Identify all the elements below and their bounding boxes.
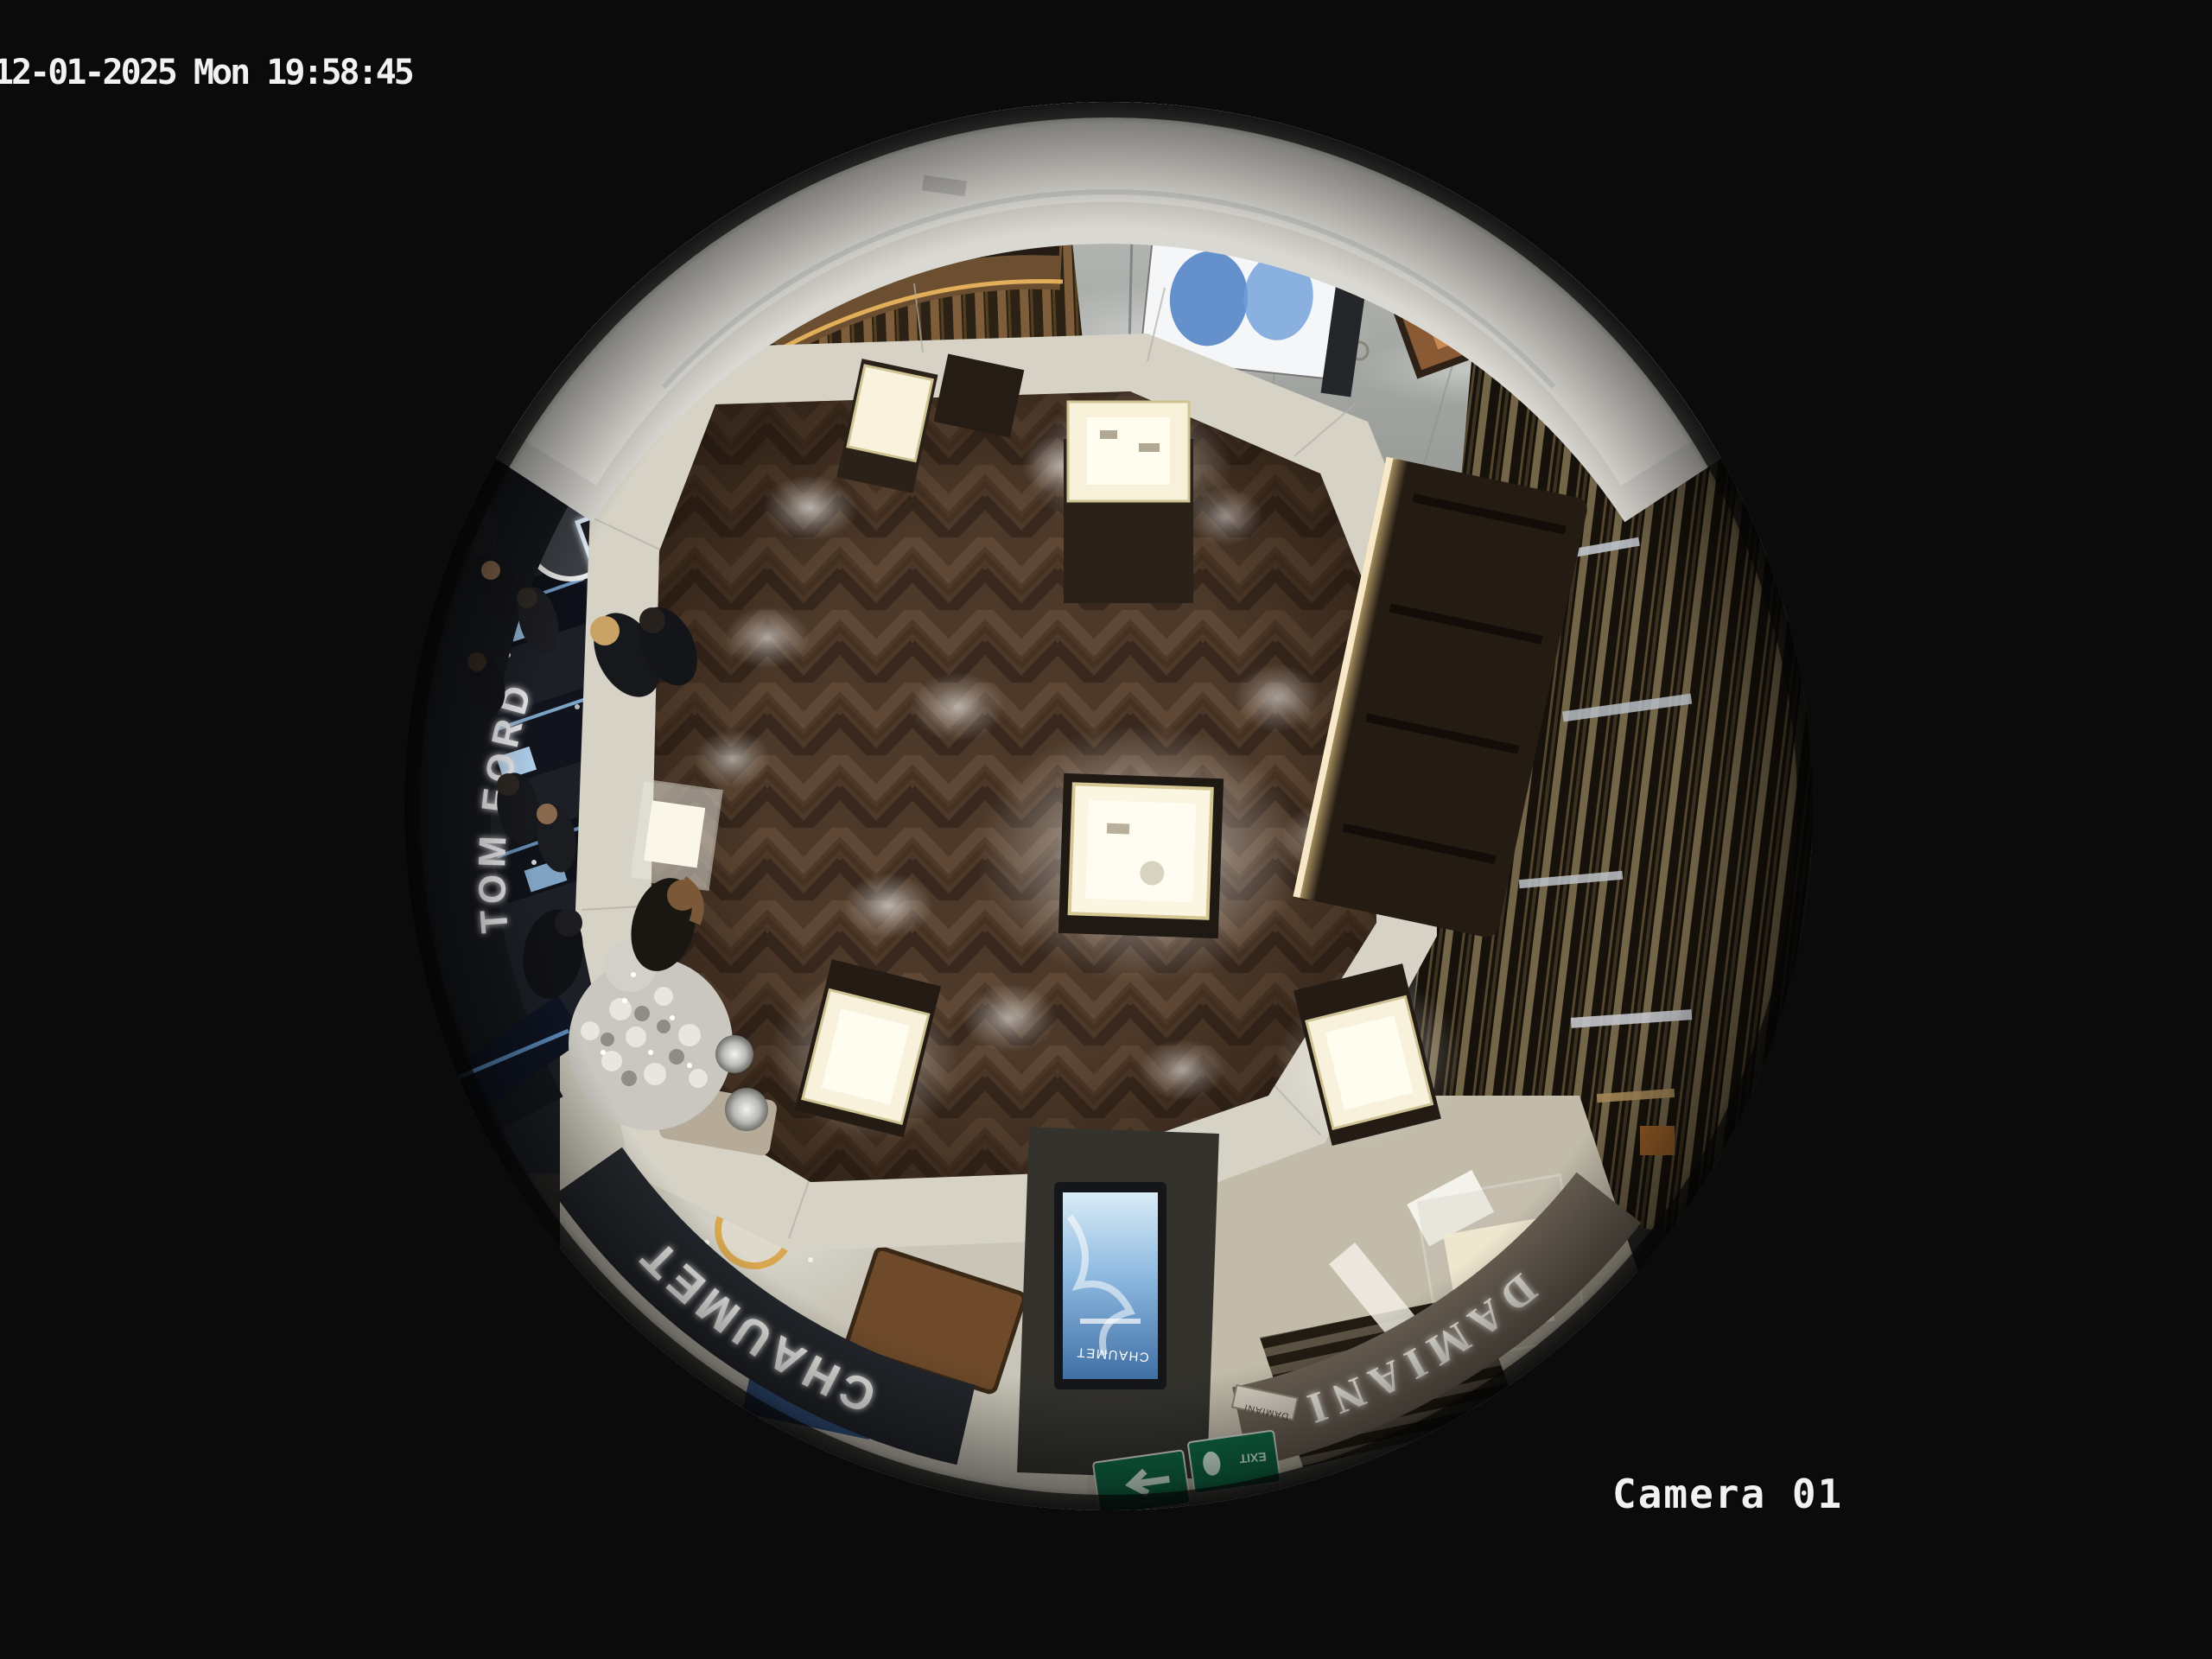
shopper [512,160,551,227]
suitcase [594,186,639,238]
fisheye-view: HONOR [404,102,1813,1510]
shopper [550,156,582,218]
timestamp: 12-01-2025 Mon 19:58:45 [0,55,412,90]
camera-label: Camera 01 [1612,1474,1843,1514]
cctv-frame: HONOR [0,0,2212,1659]
